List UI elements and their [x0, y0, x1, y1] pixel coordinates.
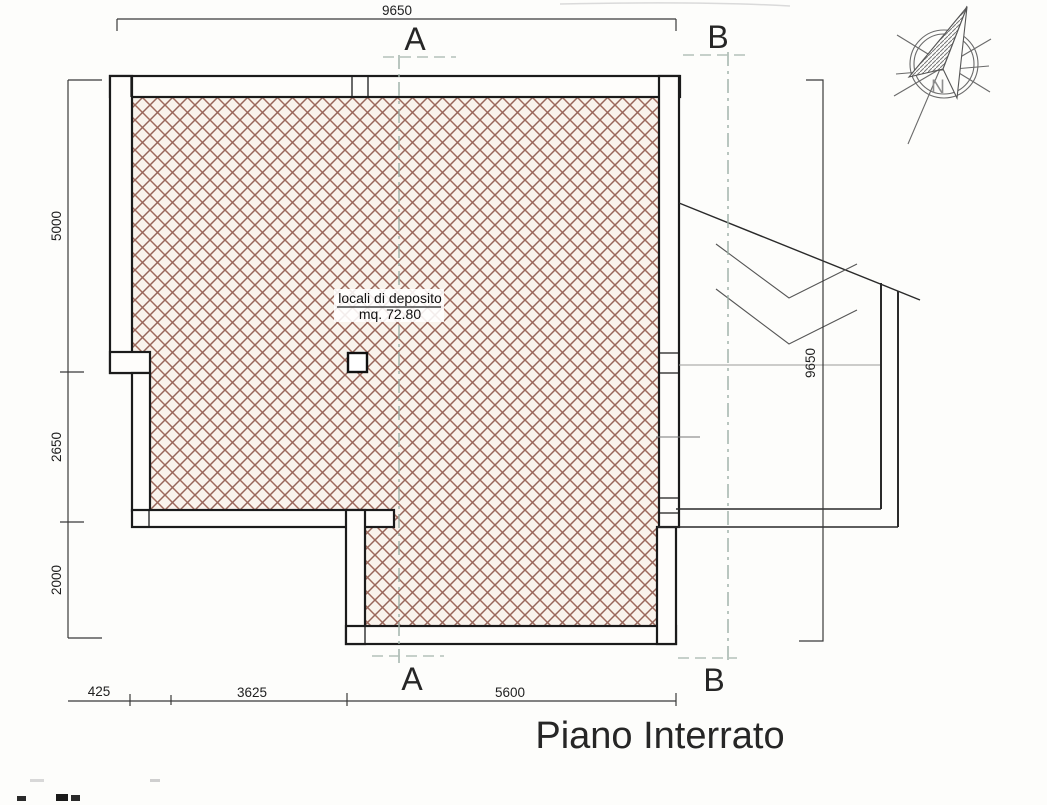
floor-plan-drawing: A A B B 9650 5000 2650 2000 425 3625 560… [0, 0, 1047, 805]
wall-protrusion-east [657, 527, 676, 644]
compass-rose-icon [894, 6, 991, 144]
dim-bottom-5600: 5600 [495, 685, 525, 700]
room-label-line2: mq. 72.80 [359, 306, 421, 322]
dim-bottom-425: 425 [88, 684, 111, 699]
compass-north-label: N [931, 77, 945, 98]
column-pillar [348, 353, 367, 372]
wall-east [659, 76, 679, 527]
ramp-chevron-1 [716, 244, 857, 298]
dim-left-2650: 2650 [49, 432, 64, 462]
dim-top [117, 19, 676, 31]
room-label-line1: locali di deposito [338, 290, 442, 306]
wall-protrusion-west [346, 510, 365, 644]
dim-left [60, 80, 102, 638]
section-label-b-top: B [707, 19, 728, 55]
dim-left-5000: 5000 [49, 211, 64, 241]
dim-top-value: 9650 [382, 3, 412, 18]
wall-west-lower [132, 373, 150, 511]
page-title: Piano Interrato [535, 715, 784, 757]
hatched-floor-area [132, 96, 661, 628]
wall-west-upper [110, 76, 132, 373]
external-ramp-lines [656, 203, 920, 527]
section-label-a-bottom: A [401, 661, 423, 697]
wall-west-step [110, 352, 150, 373]
floor-plan-scan: A A B B 9650 5000 2650 2000 425 3625 560… [0, 0, 1047, 805]
dim-left-2000: 2000 [49, 565, 64, 595]
section-label-a-top: A [404, 21, 426, 57]
section-line-b [678, 52, 750, 662]
wall-protrusion-south [346, 626, 676, 644]
boundary-diagonal [679, 203, 920, 300]
dim-bottom [68, 693, 676, 706]
ramp-chevron-2 [716, 289, 857, 344]
dim-bottom-3625: 3625 [237, 685, 267, 700]
room-label: locali di deposito mq. 72.80 [334, 289, 444, 322]
wall-top [110, 76, 680, 97]
section-label-b-bottom: B [703, 662, 724, 698]
dim-right-value: 9650 [803, 348, 818, 378]
